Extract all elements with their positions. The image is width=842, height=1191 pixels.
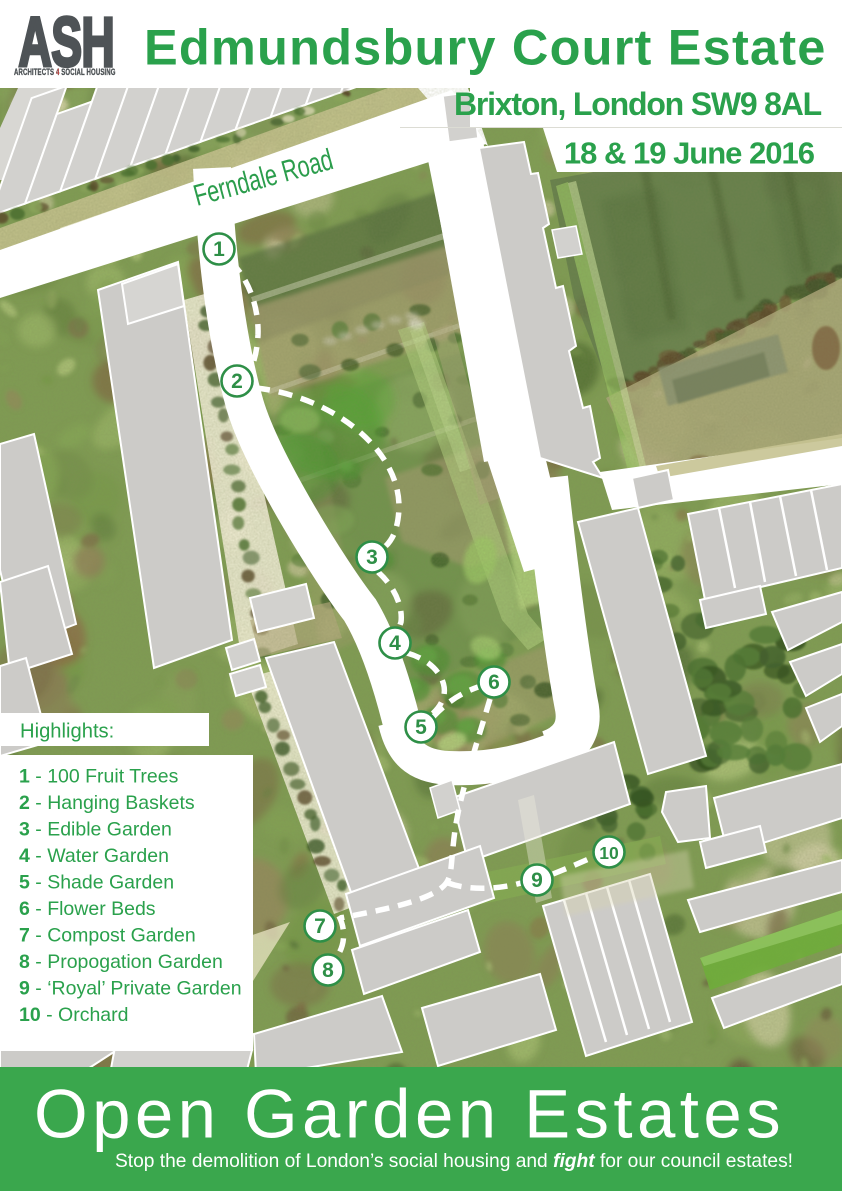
svg-text:6: 6 (488, 671, 500, 694)
svg-text:4: 4 (389, 632, 401, 655)
svg-text:3: 3 (366, 546, 378, 569)
svg-text:Edmundsbury Court Estate: Edmundsbury Court Estate (144, 19, 827, 76)
svg-text:18 & 19 June 2016: 18 & 19 June 2016 (564, 136, 815, 171)
svg-text:3 - Edible Garden: 3 - Edible Garden (19, 818, 172, 840)
svg-text:Stop the demolition of London’: Stop the demolition of London’s social h… (115, 1151, 793, 1172)
svg-text:6 - Flower Beds: 6 - Flower Beds (19, 898, 156, 920)
svg-text:10 - Orchard: 10 - Orchard (19, 1004, 128, 1026)
svg-text:9 - ‘Royal’ Private Garden: 9 - ‘Royal’ Private Garden (19, 977, 242, 999)
svg-text:1 - 100 Fruit Trees: 1 - 100 Fruit Trees (19, 765, 179, 787)
svg-text:10: 10 (599, 843, 619, 863)
svg-text:8 - Propogation Garden: 8 - Propogation Garden (19, 951, 223, 973)
svg-text:4 - Water Garden: 4 - Water Garden (19, 845, 169, 867)
svg-text:8: 8 (322, 959, 334, 982)
svg-text:5: 5 (415, 716, 427, 739)
svg-text:Highlights:: Highlights: (20, 721, 114, 743)
svg-text:2: 2 (231, 370, 243, 393)
svg-text:ARCHITECTS 4 SOCIAL HOUSING: ARCHITECTS 4 SOCIAL HOUSING (14, 67, 116, 78)
svg-text:Open Garden Estates: Open Garden Estates (34, 1076, 785, 1153)
svg-text:2 - Hanging Baskets: 2 - Hanging Baskets (19, 792, 195, 814)
svg-text:5 - Shade Garden: 5 - Shade Garden (19, 871, 174, 893)
svg-text:1: 1 (213, 238, 225, 261)
svg-text:7 - Compost Garden: 7 - Compost Garden (19, 924, 196, 946)
svg-text:Brixton, London SW9 8AL: Brixton, London SW9 8AL (454, 86, 822, 122)
svg-text:9: 9 (531, 869, 543, 892)
svg-text:7: 7 (314, 915, 326, 938)
